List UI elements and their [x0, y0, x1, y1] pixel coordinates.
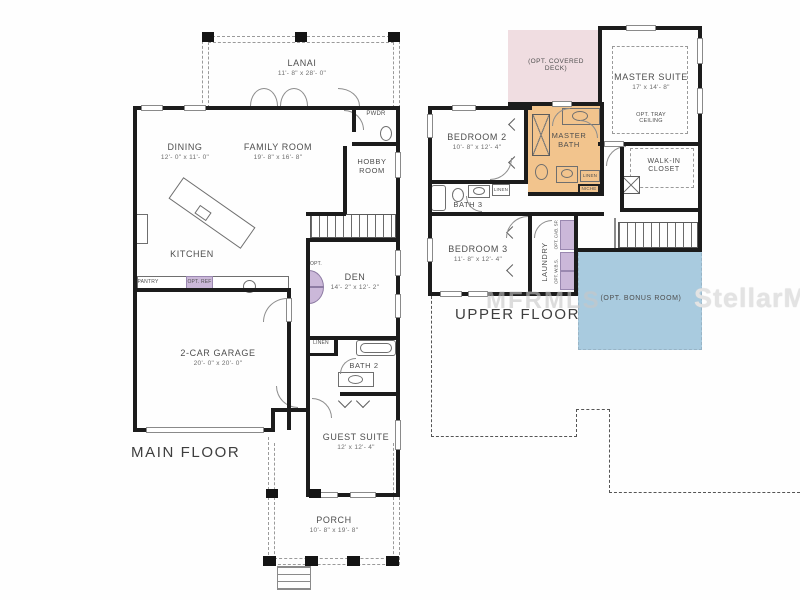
wall	[578, 248, 702, 252]
room-label-bath-2: BATH 2	[338, 361, 390, 370]
opt-wbs-label: OPT. W.B.S.	[554, 252, 561, 292]
post	[388, 32, 400, 42]
toilet	[380, 126, 392, 141]
roof-outline	[609, 409, 610, 493]
post	[347, 556, 360, 566]
garage-door	[146, 427, 264, 433]
room-label-dining: DINING 12'- 0" x 11'- 0"	[150, 142, 220, 162]
window	[350, 492, 376, 498]
post	[386, 556, 399, 566]
sink	[561, 169, 573, 178]
room-label-master-suite: MASTER SUITE 17' x 14'- 8"	[610, 72, 692, 92]
roof-outline	[576, 409, 610, 410]
wall	[306, 238, 400, 242]
stair-rail	[614, 218, 616, 250]
porch-steps	[277, 566, 311, 590]
floor-plan-canvas: LANAI 11'- 8" x 28'- 0"	[0, 0, 800, 600]
mls-watermark-center: MFRMLS	[486, 287, 601, 315]
powder-label: PWDR	[354, 111, 398, 118]
door-opening	[604, 141, 624, 147]
wall	[133, 106, 137, 432]
post	[295, 32, 307, 42]
opt-cab-label: OPT. CAB. SP.	[554, 215, 561, 255]
niche-label: NICHE	[578, 186, 600, 191]
mls-watermark-right: StellarMLS	[694, 283, 800, 314]
room-label-laundry: LAUNDRY	[540, 232, 552, 292]
wall	[528, 192, 604, 196]
post	[266, 489, 278, 498]
wall	[428, 180, 528, 184]
window	[697, 88, 703, 114]
room-label-opt-covered-deck: (OPT. COVERED DECK)	[516, 58, 596, 73]
opt-ref-label: OPT. REF	[186, 280, 213, 286]
window	[184, 105, 206, 111]
stairs	[618, 222, 698, 248]
linen-label: LINEN	[580, 173, 600, 178]
window	[427, 238, 433, 262]
room-label-kitchen: KITCHEN	[162, 249, 222, 260]
room-label-porch: PORCH 10'- 8" x 19'- 8"	[298, 515, 370, 535]
wall	[620, 142, 624, 212]
den-opt-label: OPT.	[304, 262, 328, 268]
wall	[352, 106, 356, 132]
wall	[310, 353, 336, 356]
wall	[340, 392, 400, 396]
wall	[524, 106, 528, 184]
window	[440, 291, 462, 297]
window	[697, 38, 703, 64]
wall	[306, 212, 346, 216]
door-swing	[490, 158, 512, 180]
roof-outline	[431, 436, 577, 437]
room-label-walk-in-closet: WALK-IN CLOSET	[636, 158, 692, 175]
bifold-door	[356, 394, 370, 408]
sink	[348, 375, 363, 384]
window	[626, 25, 656, 31]
main-floor-title: MAIN FLOOR	[131, 444, 240, 461]
window	[395, 250, 401, 276]
door-swing	[506, 216, 528, 238]
room-label-guest-suite: GUEST SUITE 12' x 12'- 4"	[318, 432, 394, 452]
room-label-master-bath: MASTER BATH	[546, 131, 592, 149]
porch-outline-inner	[274, 443, 394, 559]
opt-door	[309, 270, 324, 287]
linen-label: LINEN	[308, 341, 334, 347]
wall	[428, 106, 532, 110]
bifold-door	[506, 264, 519, 277]
room-label-bedroom-2: BEDROOM 2 10'- 8" x 12'- 4"	[442, 132, 512, 152]
wall	[133, 106, 400, 110]
bathtub-inner	[360, 343, 392, 353]
wall	[528, 212, 532, 296]
door-swing	[263, 298, 287, 322]
room-label-den: DEN 14'- 2" x 12'- 2"	[330, 272, 380, 292]
toilet	[535, 164, 548, 180]
room-label-hobby-room: HOBBY ROOM	[348, 157, 396, 175]
roof-outline	[576, 409, 577, 437]
post	[309, 489, 321, 498]
window	[141, 105, 163, 111]
window	[395, 294, 401, 318]
tray-ceiling-note: OPT. TRAY CEILING	[627, 112, 675, 125]
room-label-opt-bonus-room: (OPT. BONUS ROOM)	[598, 295, 684, 303]
room-label-lanai: LANAI 11'- 8" x 28'- 0"	[252, 58, 352, 78]
stairs	[310, 214, 396, 238]
roof-outline	[609, 492, 800, 493]
wall	[600, 102, 604, 196]
post	[263, 556, 276, 566]
room-label-bath-3: BATH 3	[446, 200, 490, 209]
door-opening	[552, 101, 572, 107]
sink	[473, 187, 485, 195]
bathtub	[431, 185, 446, 211]
closet-shelf-box	[622, 176, 640, 194]
wall	[306, 238, 310, 340]
wall	[598, 26, 602, 106]
room-label-family-room: FAMILY ROOM 19'- 8" x 16'- 8"	[236, 142, 320, 162]
door-swing	[312, 398, 332, 418]
bifold-door	[508, 118, 521, 131]
wall	[620, 208, 702, 212]
window	[452, 105, 476, 111]
window	[468, 291, 488, 297]
post	[305, 556, 318, 566]
linen-label: LINEN	[492, 187, 510, 192]
kitchen-island	[169, 177, 256, 249]
roof-outline	[431, 296, 432, 437]
wall	[133, 288, 291, 292]
door-opening	[286, 298, 292, 322]
window	[427, 114, 433, 138]
window	[395, 420, 401, 450]
opt-door	[309, 287, 324, 304]
bifold-door	[338, 394, 352, 408]
pantry-label: PANTRY	[135, 280, 161, 286]
room-label-garage: 2-CAR GARAGE 20'- 0" x 20'- 0"	[176, 348, 260, 368]
wall	[343, 146, 347, 214]
room-label-bedroom-3: BEDROOM 3 11'- 8" x 12'- 4"	[442, 244, 514, 264]
post	[202, 32, 214, 42]
wall	[352, 142, 400, 146]
wall	[574, 212, 578, 296]
